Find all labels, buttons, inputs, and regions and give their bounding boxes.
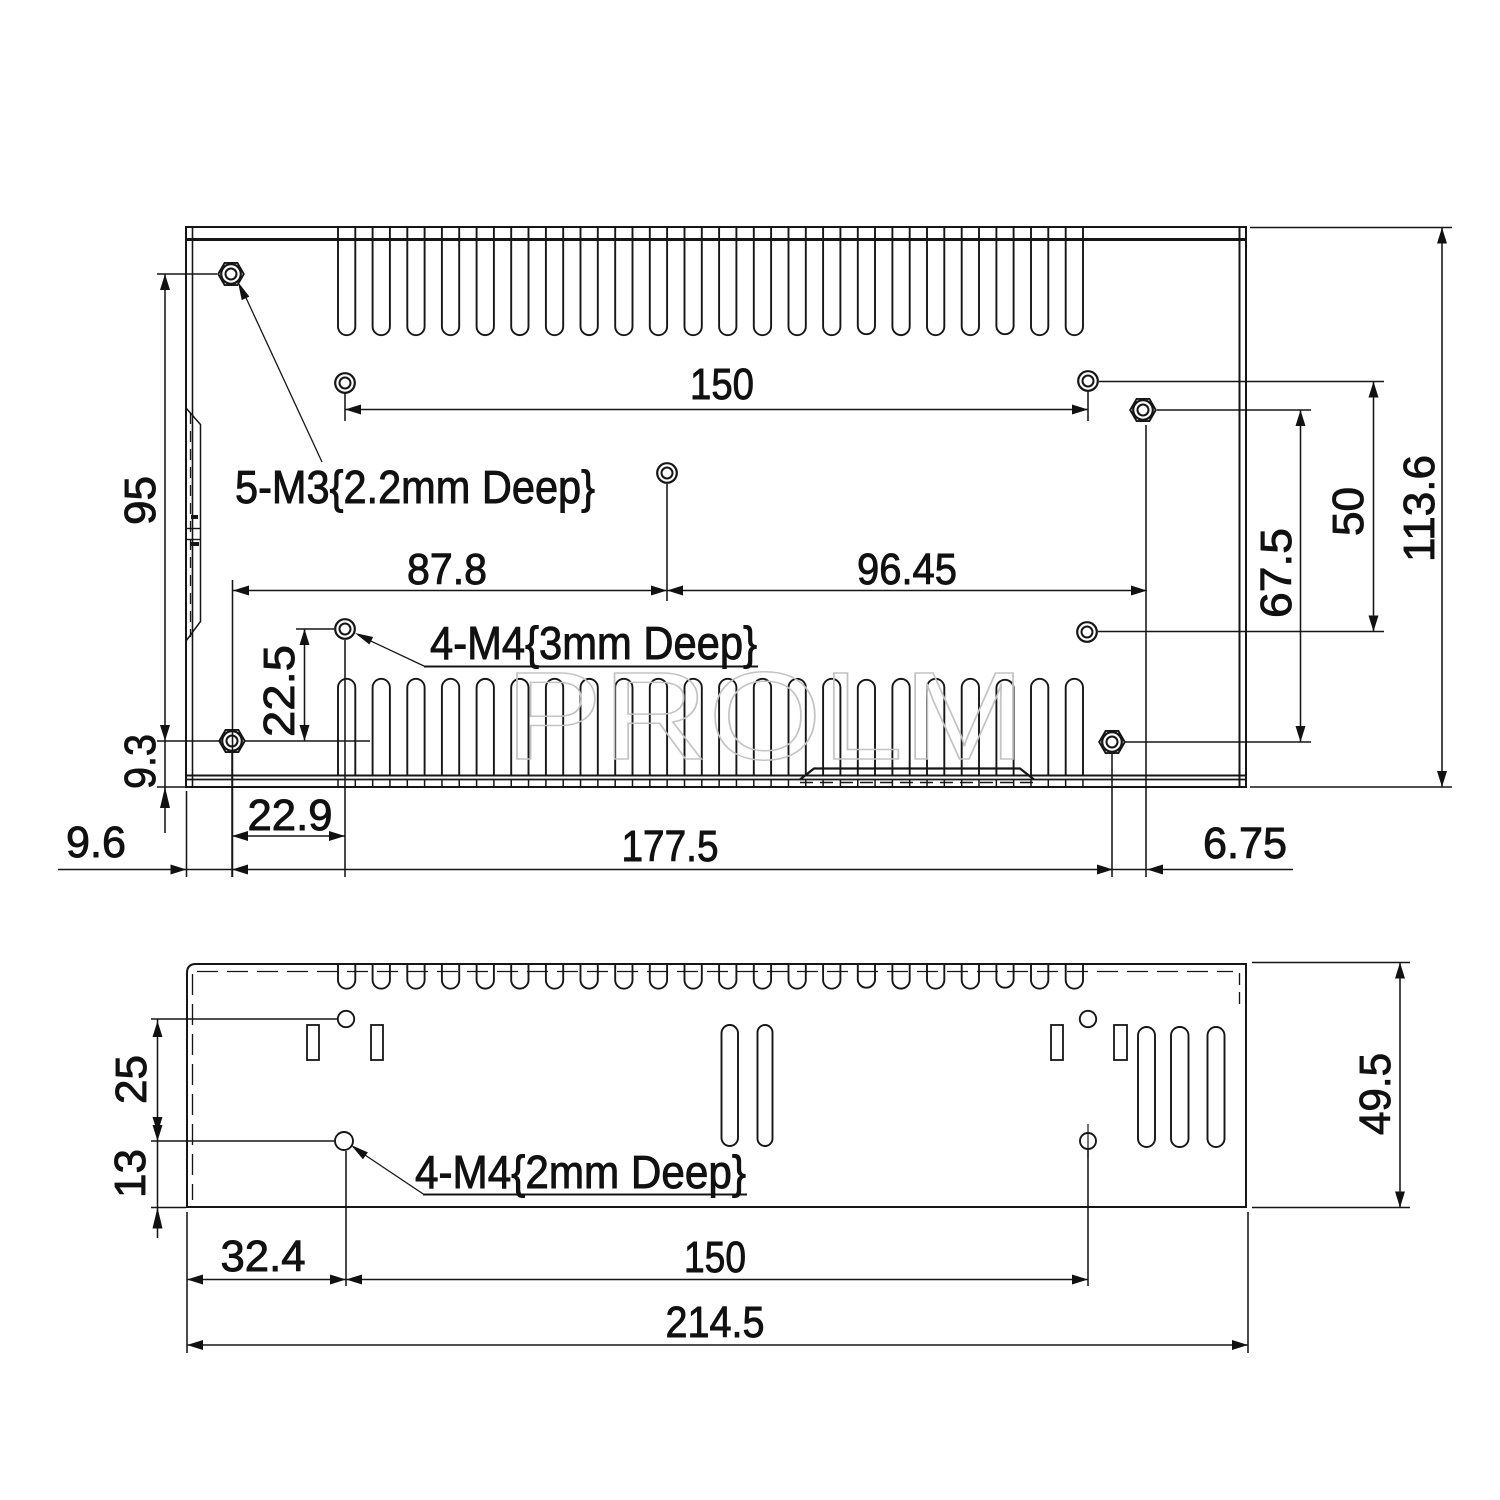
svg-text:PROLM: PROLM xyxy=(505,647,1025,786)
svg-text:22.5: 22.5 xyxy=(255,645,304,737)
svg-text:6.75: 6.75 xyxy=(1203,819,1287,868)
svg-text:150: 150 xyxy=(690,360,754,409)
svg-text:13: 13 xyxy=(106,1149,155,1198)
svg-text:4-M4{2mm Deep}: 4-M4{2mm Deep} xyxy=(415,1146,746,1198)
svg-text:5-M3{2.2mm Deep}: 5-M3{2.2mm Deep} xyxy=(235,461,595,513)
svg-text:25: 25 xyxy=(107,1055,156,1104)
svg-text:9.6: 9.6 xyxy=(66,818,126,867)
svg-text:49.5: 49.5 xyxy=(1351,1053,1400,1135)
svg-text:177.5: 177.5 xyxy=(622,822,719,871)
svg-text:67.5: 67.5 xyxy=(1252,528,1301,618)
svg-text:214.5: 214.5 xyxy=(666,1298,765,1347)
svg-text:22.9: 22.9 xyxy=(248,791,333,840)
svg-text:95: 95 xyxy=(116,476,165,525)
svg-text:150: 150 xyxy=(684,1233,746,1282)
svg-text:50: 50 xyxy=(1324,487,1373,536)
svg-text:87.8: 87.8 xyxy=(407,545,487,594)
svg-text:96.45: 96.45 xyxy=(857,545,957,594)
svg-text:9.3: 9.3 xyxy=(116,734,165,789)
svg-text:32.4: 32.4 xyxy=(221,1232,306,1281)
svg-text:113.6: 113.6 xyxy=(1395,455,1444,562)
